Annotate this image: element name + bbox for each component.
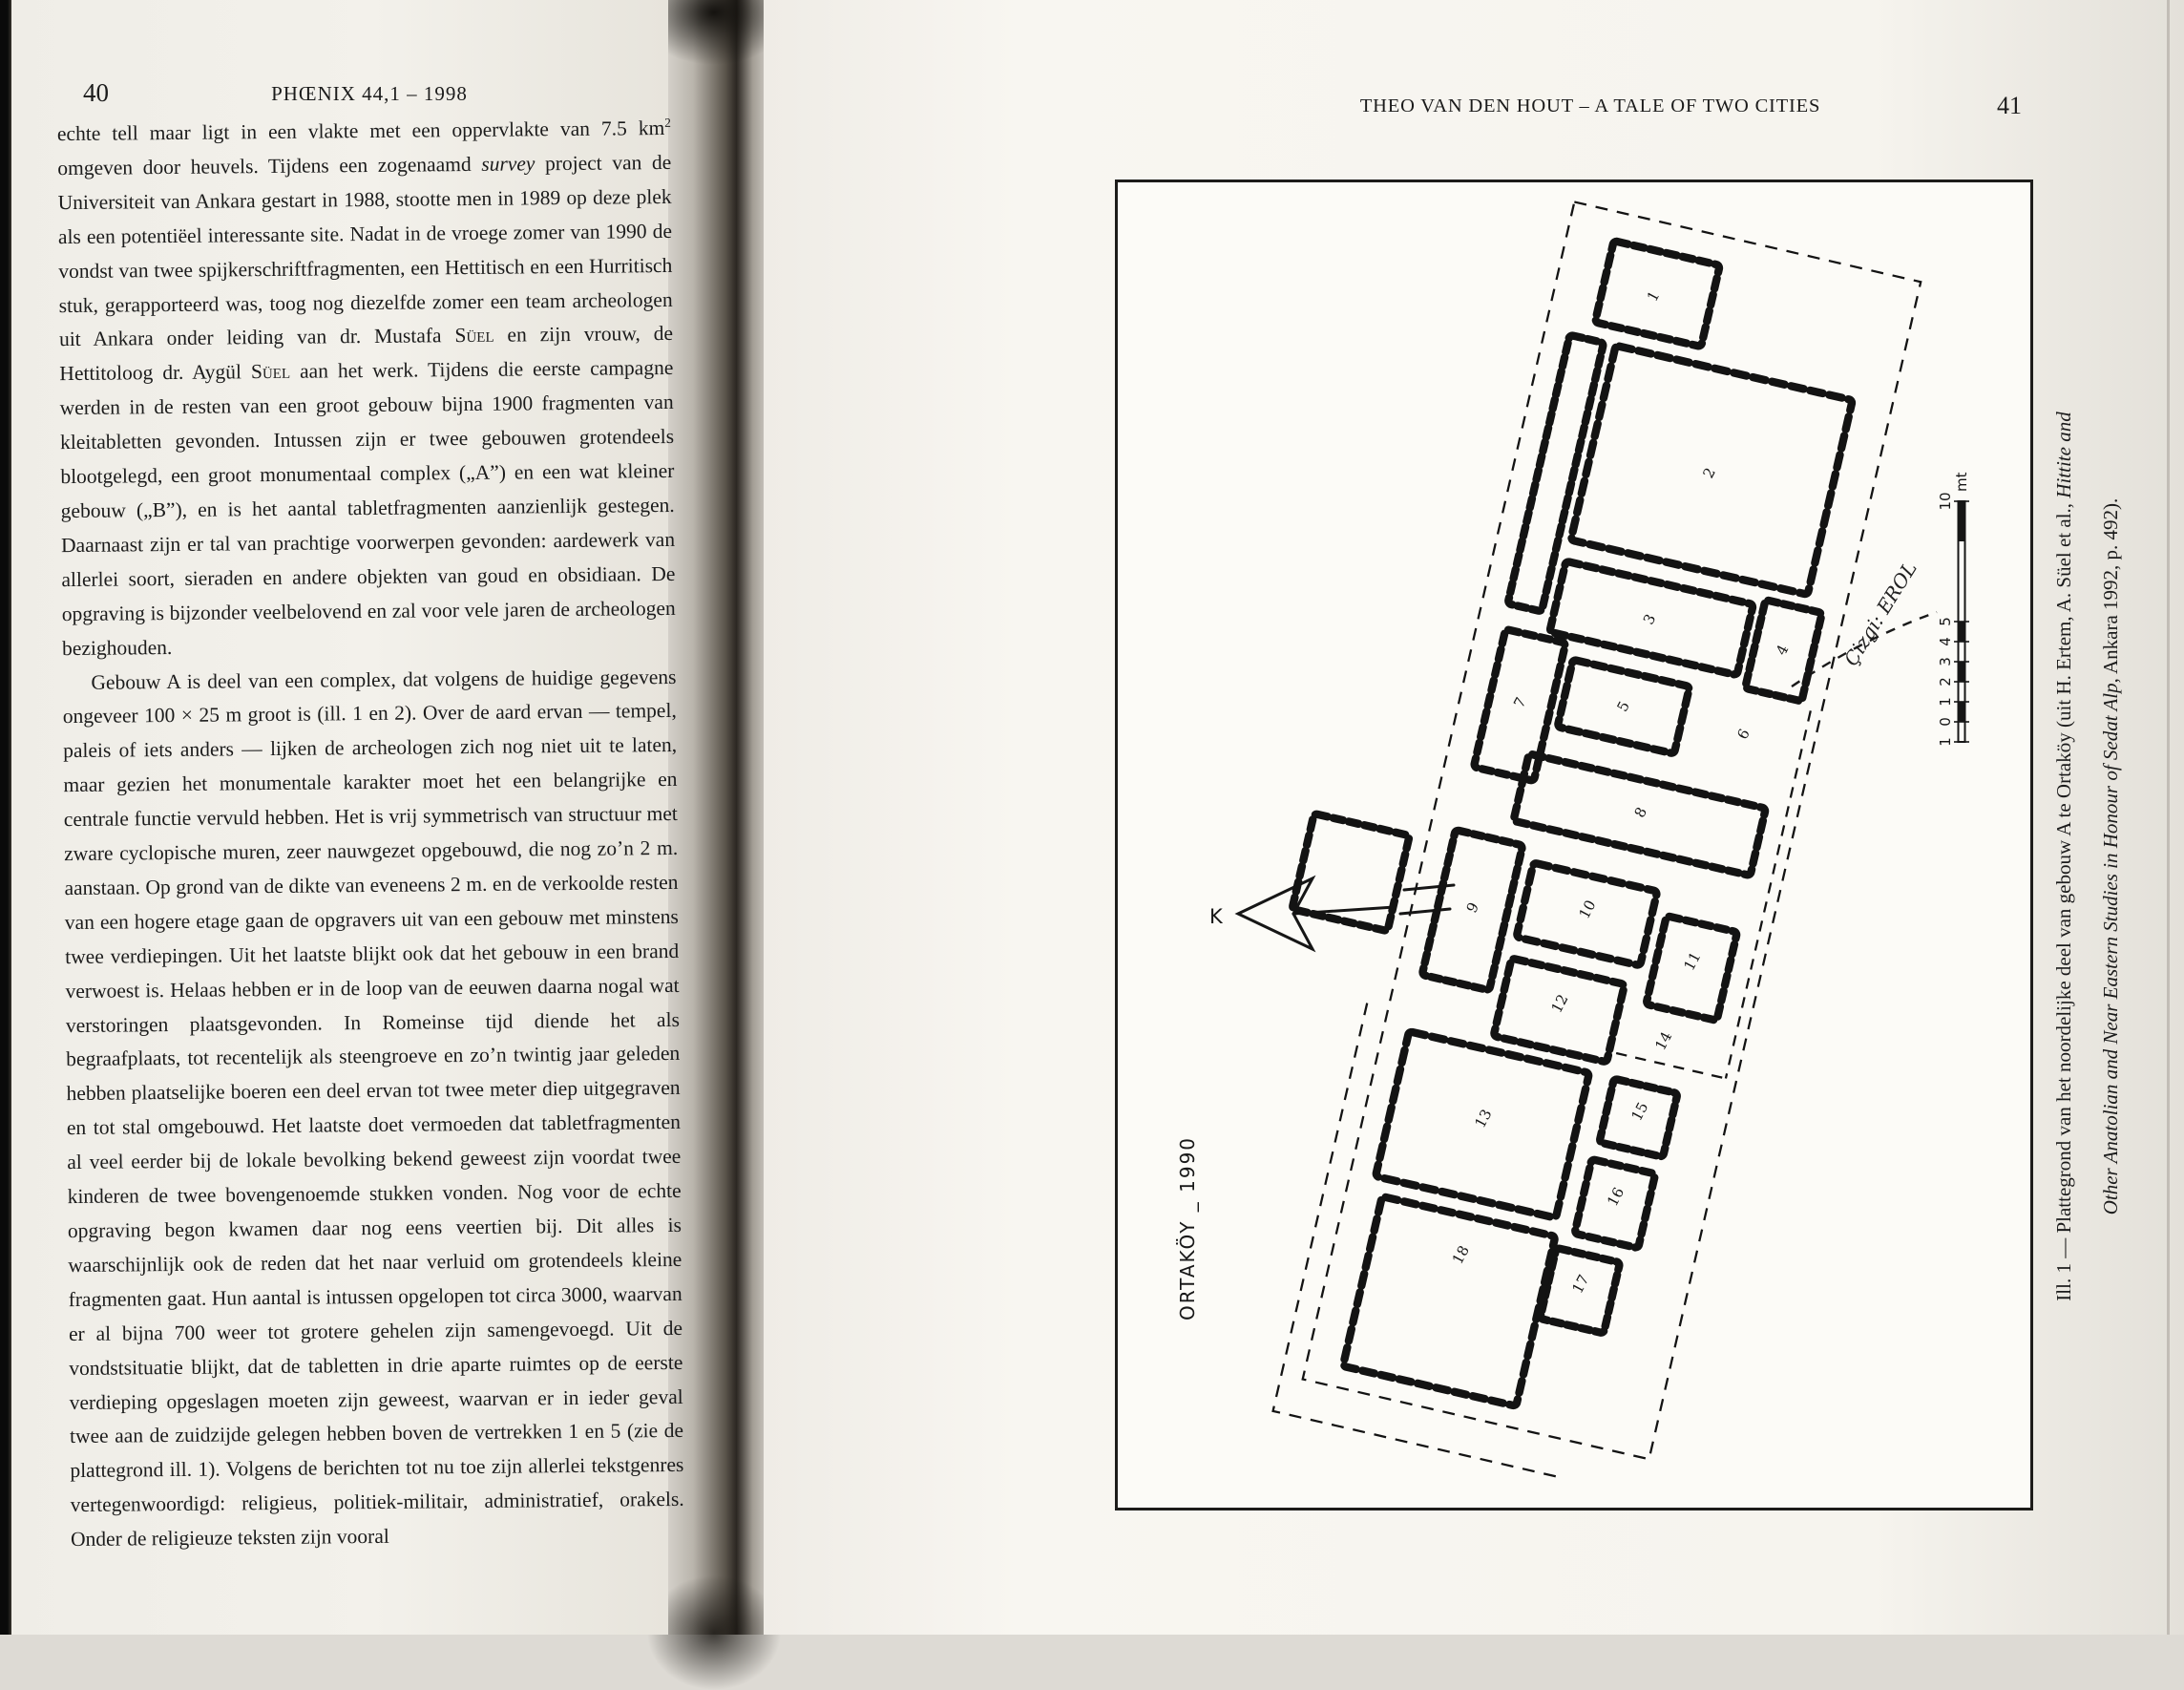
scale-tick-label: 3 [1937, 657, 1954, 666]
room-number-3: 3 [1640, 611, 1659, 627]
room-number-12: 12 [1548, 991, 1572, 1016]
caption-line-2: Other Anatolian and Near Eastern Studies… [2088, 241, 2134, 1472]
scale-tick-label: 1 [1937, 737, 1954, 747]
page-fold-line [2167, 0, 2170, 1635]
inner-dashed-line [1726, 710, 1811, 1078]
drawing-credit: Çizgi: EROL [1839, 558, 1921, 670]
scale-tick-label: 4 [1937, 637, 1954, 646]
room-number-14: 14 [1651, 1029, 1675, 1054]
scale-tick-label: 5 [1937, 617, 1954, 626]
scale-tick-label: 2 [1937, 677, 1954, 687]
room-number-9: 9 [1463, 899, 1482, 916]
room-number-10: 10 [1576, 898, 1600, 922]
body-text-column: echte tell maar ligt in een vlakte met e… [57, 112, 684, 1557]
room-wall [1343, 1196, 1555, 1406]
building-complex: 1 2 3 4 5 6 7 8 9 10 11 12 13 14 15 16 1… [1181, 182, 1921, 1496]
running-head-left: PHŒNIX 44,1 – 1998 [64, 82, 675, 106]
inner-dashed-line [1616, 1053, 1726, 1078]
plan-title: ORTAKÖY _ 1990 [1176, 1136, 1199, 1320]
north-arrow-icon: K [1209, 878, 1454, 949]
room-number-13: 13 [1472, 1107, 1496, 1131]
room-number-16: 16 [1604, 1185, 1627, 1210]
floor-plan-drawing: K ORTAKÖY _ 1990 Çizgi: EROL 1 [1118, 182, 2030, 1508]
paragraph-2: Gebouw A is deel van een complex, dat vo… [62, 660, 684, 1557]
room-number-8: 8 [1631, 804, 1650, 820]
caption-line-1: Ill. 1 — Plattegrond van het noordelijke… [2041, 241, 2088, 1472]
scale-tick-label: 0 [1937, 717, 1954, 727]
running-head-right: THEO VAN DEN HOUT – A TALE OF TWO CITIES [1179, 95, 2002, 117]
room-number-15: 15 [1627, 1099, 1651, 1124]
figure-frame: K ORTAKÖY _ 1990 Çizgi: EROL 1 [1115, 180, 2033, 1510]
room-number-6: 6 [1733, 726, 1753, 742]
paragraph-1: echte tell maar ligt in een vlakte met e… [57, 112, 676, 666]
detached-room-wall [1292, 813, 1410, 931]
scale-tick-label: 1 [1937, 697, 1954, 707]
room-number-18: 18 [1449, 1243, 1473, 1268]
scale-bar: 1 0 1 2 3 4 5 10 mt [1937, 472, 1970, 746]
room-number-1: 1 [1644, 288, 1663, 305]
room-number-4: 4 [1773, 642, 1792, 658]
left-page: 40 PHŒNIX 44,1 – 1998 echte tell maar li… [11, 0, 668, 1635]
page-number-right: 41 [1997, 92, 2022, 120]
room-number-7: 7 [1510, 694, 1529, 710]
figure-caption: Ill. 1 — Plattegrond van het noordelijke… [2041, 241, 2140, 1472]
room-number-11: 11 [1681, 949, 1705, 974]
room-number-5: 5 [1614, 698, 1633, 714]
room-number-17: 17 [1568, 1272, 1592, 1297]
scale-unit-label: mt [1953, 472, 1970, 492]
north-letter: K [1209, 905, 1224, 928]
scale-tick-label: 10 [1937, 492, 1954, 510]
room-number-2: 2 [1700, 465, 1719, 481]
